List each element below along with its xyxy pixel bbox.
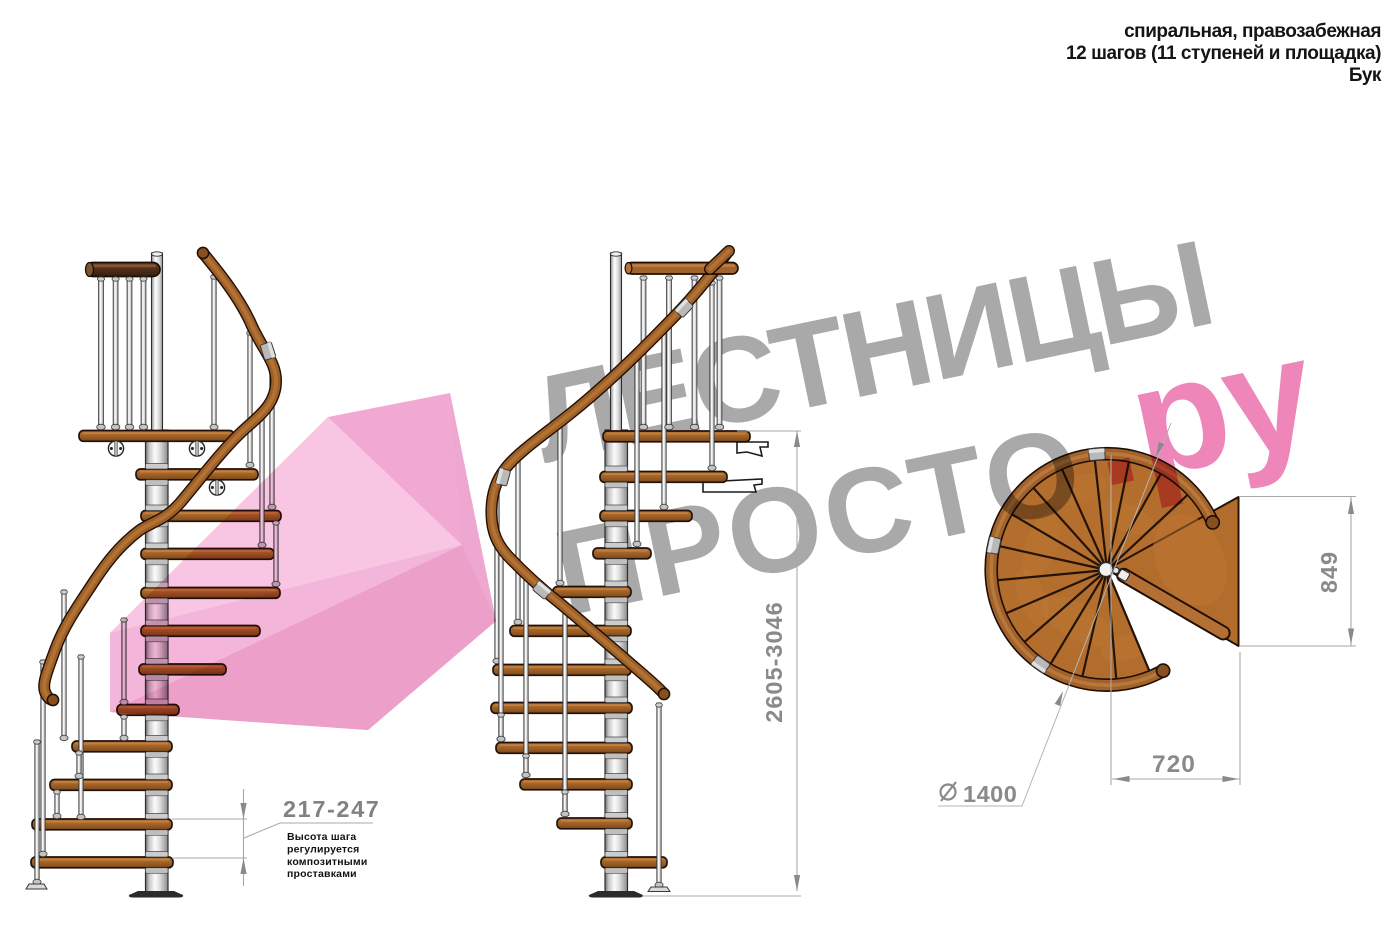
svg-text:Высота шагарегулируетсякомпози: Высота шагарегулируетсякомпозитнымипрост… — [287, 831, 368, 880]
svg-text:720: 720 — [1152, 751, 1196, 778]
svg-text:217-247: 217-247 — [283, 796, 380, 822]
svg-text:1400: 1400 — [963, 781, 1017, 807]
svg-text:849: 849 — [1316, 551, 1342, 593]
svg-text:2605-3046: 2605-3046 — [761, 601, 787, 722]
